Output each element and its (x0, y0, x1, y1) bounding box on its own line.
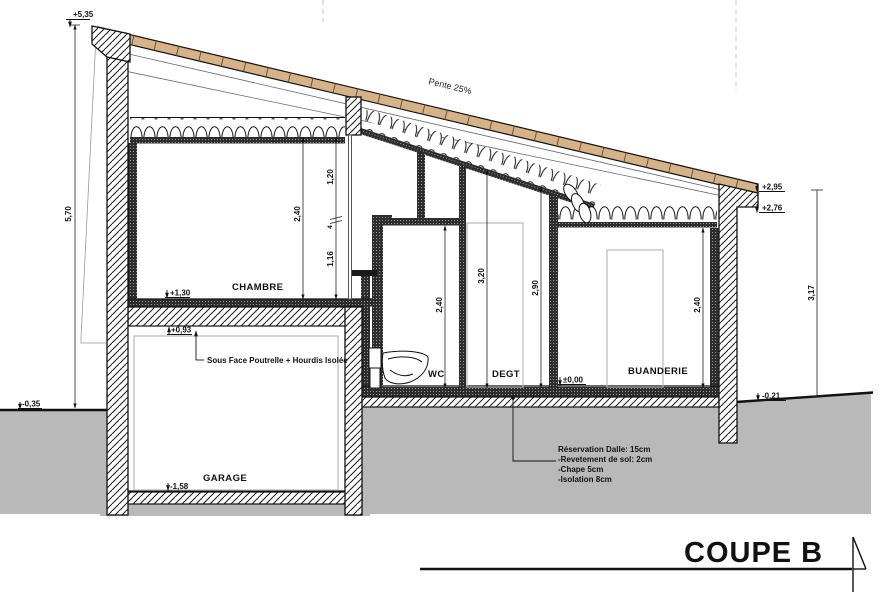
wall-degt-buanderie (549, 195, 558, 390)
terrain-profile-line (81, 36, 107, 343)
ground-left (0, 411, 107, 514)
level-label-035: -0,35 (22, 400, 41, 409)
wall-hung-toilet (369, 348, 428, 388)
level-label-093: +0,93 (171, 326, 192, 335)
wc-ceiling (383, 218, 459, 226)
chambre-floor-finish (128, 300, 383, 307)
wc-duct-shelf (352, 270, 377, 276)
page-title: COUPE B (684, 537, 823, 569)
slab-note-line-3: -Chape 5cm (558, 465, 603, 474)
title-flag-diagonal (853, 537, 866, 569)
wall-insulation-left (128, 143, 137, 299)
roof-slope-label: Pente 25% (428, 76, 473, 96)
dim-label-4: 4 (327, 225, 334, 229)
section-drawing-coupe-b: Pente 25% (0, 0, 886, 600)
dim-label-116: 1,16 (326, 251, 335, 267)
wall-left-exterior (107, 35, 128, 515)
dim-label-wc-h: 2,40 (435, 297, 444, 313)
roof-tile-joints (98, 27, 758, 194)
level-label-535: +5,35 (73, 10, 94, 19)
soffit-note: Sous Face Poutrelle + Hourdis Isolée (207, 356, 348, 365)
chambre-partition (349, 135, 352, 299)
buanderie-ceiling-slab (558, 222, 717, 228)
room-label-buanderie: BUANDERIE (628, 366, 688, 377)
room-label-wc: WC (428, 369, 445, 380)
level-label-276: +2,76 (762, 204, 783, 213)
garage-floor-slab (118, 492, 362, 504)
slab-note-line-1: Réservation Dalle: 15cm (558, 445, 651, 454)
slab-note-line-4: -Isolation 8cm (558, 475, 612, 484)
dim-label-degt-h1: 3,20 (477, 268, 486, 284)
dim-label-chambre-h: 2,40 (293, 206, 302, 222)
dim-label-317: 3,17 (807, 285, 816, 301)
main-floor-slab (361, 397, 719, 407)
dim-label-degt-h2: 2,90 (531, 280, 540, 296)
dim-label-120: 1,20 (326, 169, 335, 185)
room-label-degt: DEGT (492, 369, 520, 380)
drawing-canvas: Pente 25% (0, 0, 886, 600)
slab-note-line-2: -Revetement de sol: 2cm (558, 455, 652, 464)
wall-mid (345, 307, 362, 515)
room-label-garage: GARAGE (203, 473, 247, 484)
wall-left-cap (92, 26, 130, 62)
attic-stud (417, 152, 425, 218)
level-label-295: +2,95 (762, 183, 783, 192)
level-label-158: -1,58 (170, 482, 189, 491)
chambre-floor-slab (128, 307, 362, 326)
level-label-021: -0,21 (762, 392, 781, 401)
dim-label-buanderie-h: 2,40 (693, 297, 702, 313)
roof-beam (346, 97, 361, 135)
partition-wc-degt (459, 166, 466, 390)
degt-door-outline (467, 223, 523, 387)
chambre-ceiling-slab (130, 137, 345, 144)
ground-under-garage (100, 504, 370, 516)
wall-insulation-right (710, 228, 719, 390)
chambre-ceiling-insulation (130, 118, 345, 137)
level-label-130: +1,30 (170, 289, 191, 298)
level-label-000: ±0,00 (563, 376, 584, 385)
room-label-chambre: CHAMBRE (232, 282, 283, 293)
dim-label-570: 5,70 (64, 206, 73, 222)
